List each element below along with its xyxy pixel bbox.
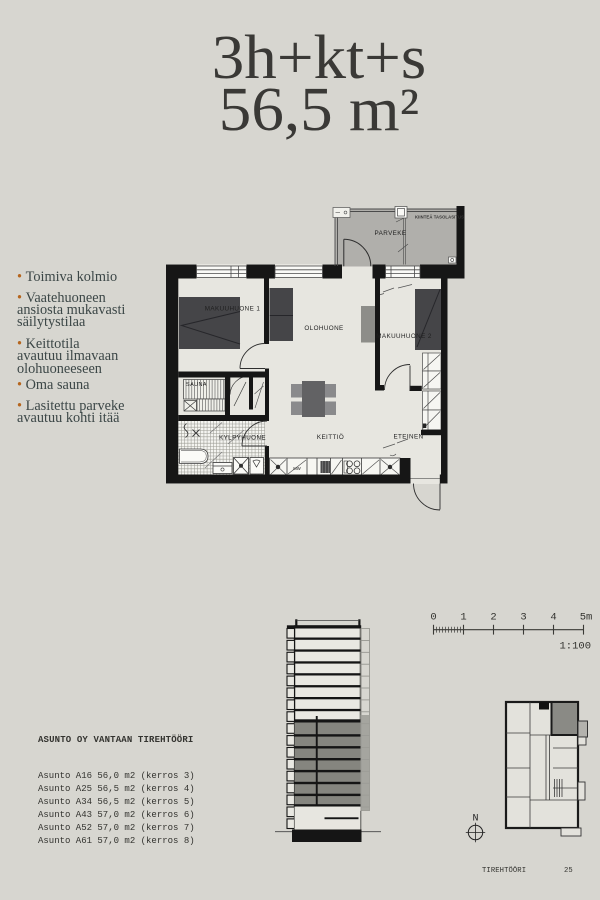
svg-text:MAKUUHUONE 2: MAKUUHUONE 2: [376, 333, 432, 340]
svg-text:2: 2: [490, 612, 496, 624]
svg-text:OLOHUONE: OLOHUONE: [304, 325, 343, 332]
svg-text:MW: MW: [293, 466, 300, 471]
svg-text:3: 3: [520, 612, 526, 624]
svg-text:KYLPYHUONE: KYLPYHUONE: [219, 435, 266, 442]
svg-text:1: 1: [460, 612, 466, 624]
svg-text:5m: 5m: [580, 612, 593, 624]
svg-text:4: 4: [550, 612, 556, 624]
svg-text:KIINTEÄ TASOLASITUS: KIINTEÄ TASOLASITUS: [415, 215, 464, 220]
svg-text:N: N: [472, 814, 478, 825]
svg-text:PARVEKE: PARVEKE: [375, 230, 407, 237]
svg-text:ETEINEN: ETEINEN: [393, 434, 423, 441]
svg-text:SAUNA: SAUNA: [186, 382, 207, 388]
svg-text:KEITTIÖ: KEITTIÖ: [317, 433, 344, 441]
svg-text:0: 0: [430, 612, 436, 624]
svg-text:1:100: 1:100: [559, 641, 591, 653]
svg-text:MAKUUHUONE 1: MAKUUHUONE 1: [205, 306, 261, 313]
